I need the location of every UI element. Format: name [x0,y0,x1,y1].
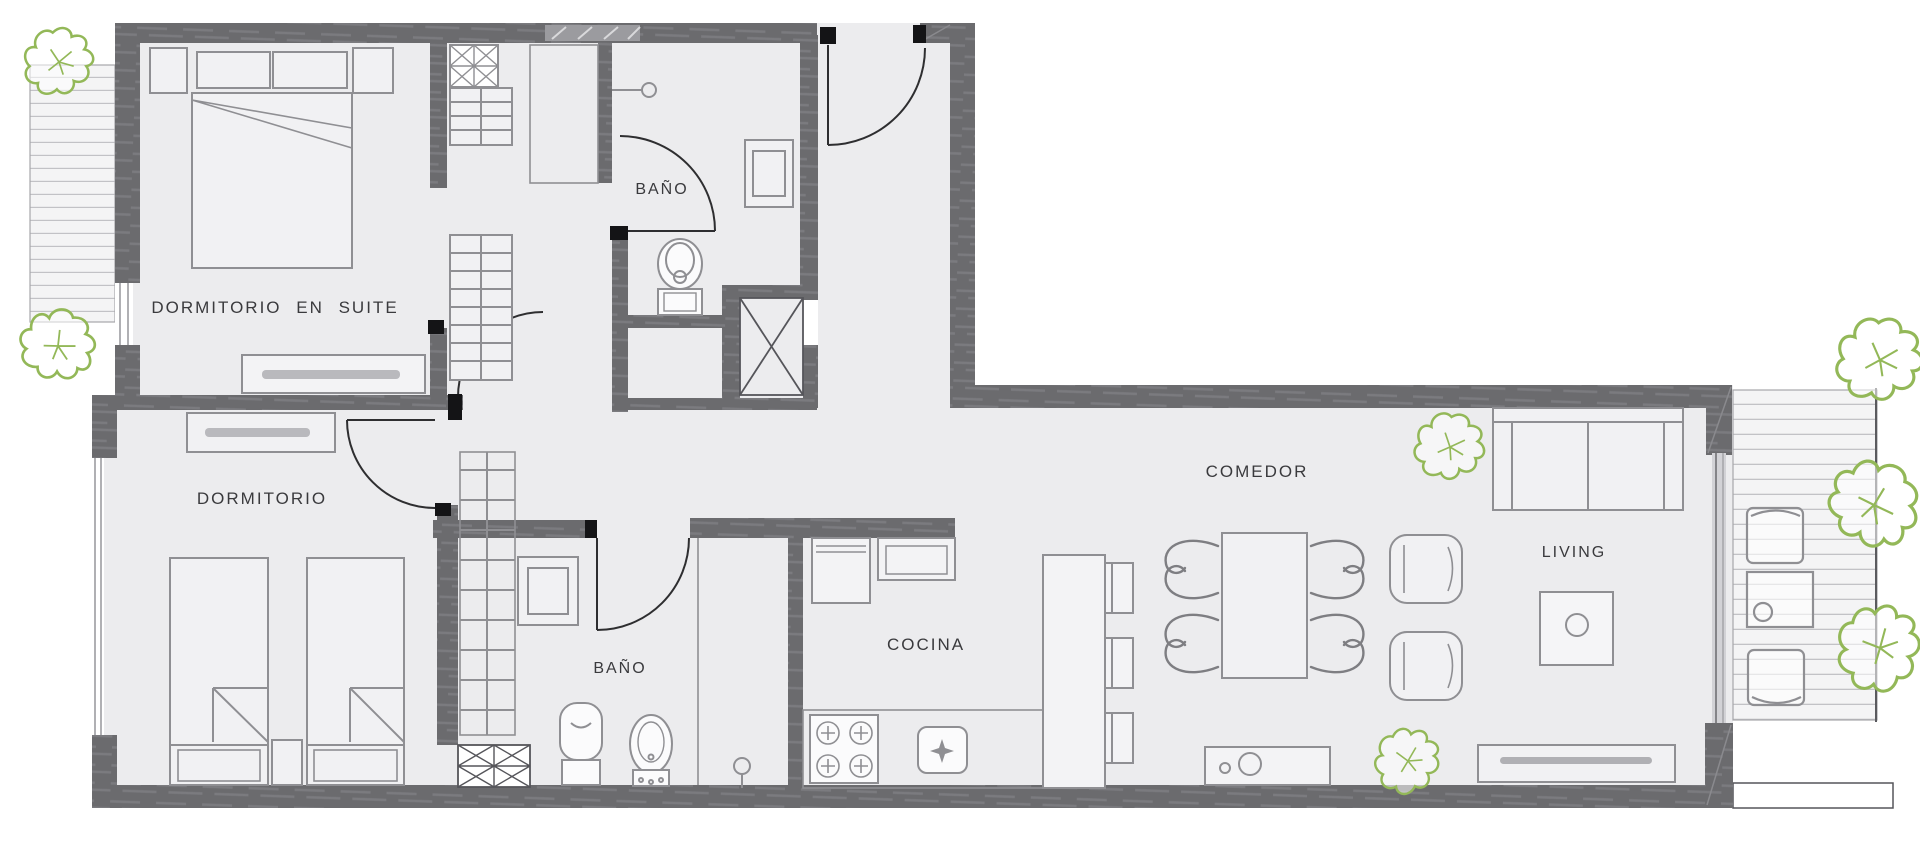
single-bed-1 [170,558,268,785]
floor-plan-page: DORMITORIO EN SUITE BAÑO DORMITORIO BAÑO… [0,0,1920,847]
room-label-living: LIVING [1542,544,1606,562]
toilet-2 [560,703,602,785]
nightstand [272,740,302,785]
fridge [812,538,870,603]
island [1043,555,1105,788]
balcony-chair [1748,650,1804,705]
balcony-furniture [1747,508,1813,705]
room-label-dormitorio: DORMITORIO [197,489,327,509]
single-bed-2 [307,558,404,785]
balcony-chair [1747,508,1803,563]
sideboard [1205,747,1330,785]
room-label-cocina: COCINA [887,635,965,655]
armchair [1390,535,1462,603]
balcony-table [1747,572,1813,627]
toilet-1 [658,239,702,315]
tv-console [1478,745,1675,782]
balcony-left-deck [30,65,115,322]
air-shaft-2 [458,745,530,787]
coffee-table [1540,592,1613,665]
floor-plan-drawing [0,0,1920,847]
dorm-dresser [187,413,335,452]
kitchen-sink [918,727,967,773]
armchair [1390,632,1462,700]
sofa [1493,408,1683,510]
suite-dresser [242,355,425,393]
upper-counter [878,538,955,580]
stove [810,715,878,783]
room-label-bano-2: BAÑO [593,660,646,678]
dining-table [1222,533,1307,678]
room-label-dormitorio-en-suite: DORMITORIO EN SUITE [151,298,398,318]
room-label-bano-suite: BAÑO [635,181,688,199]
bidet [630,715,672,786]
stools [1105,563,1133,763]
room-label-comedor: COMEDOR [1206,462,1309,482]
